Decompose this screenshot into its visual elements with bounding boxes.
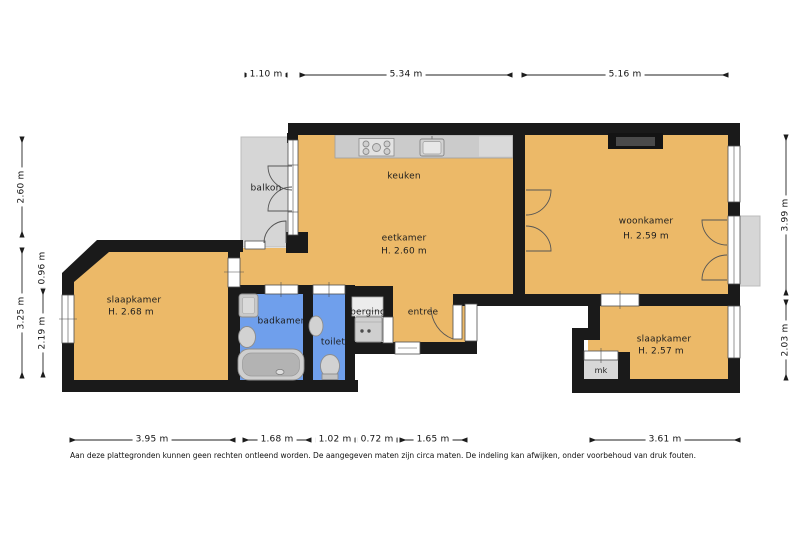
dim-bottom-2: 1.68 m	[258, 436, 297, 445]
dim-top-2: 5.34 m	[387, 71, 426, 80]
dim-left-outer-2: 3.25 m	[18, 294, 27, 333]
dim-left-outer-1: 2.60 m	[18, 168, 27, 207]
label-slaapkamer-rechts-height: H. 2.57 m	[638, 348, 684, 357]
stove-icon	[359, 139, 394, 157]
dim-bottom-5: 1.65 m	[414, 436, 453, 445]
dim-top-3: 5.16 m	[606, 71, 645, 80]
label-mk: mk	[595, 367, 608, 375]
french-balcony	[738, 216, 760, 286]
toilet-sink-icon	[309, 316, 323, 336]
bathroom-sink-icon	[239, 327, 256, 348]
label-toilet: toilet	[321, 339, 345, 348]
label-slaapkamer-rechts: slaapkamer	[637, 336, 692, 345]
dim-bottom-4: 0.72 m	[358, 436, 397, 445]
dim-bottom-6: 3.61 m	[646, 436, 685, 445]
chimney-niche	[608, 133, 663, 149]
label-slaapkamer-links: slaapkamer	[107, 297, 162, 306]
balkon-threshold	[245, 241, 265, 249]
room-woonkamer	[519, 129, 734, 300]
dim-bottom-3: 1.02 m	[316, 436, 355, 445]
dim-top-1: 1.10 m	[247, 71, 286, 80]
sink-icon	[420, 136, 444, 156]
label-woonkamer: woonkamer	[619, 218, 673, 227]
dim-bottom-1: 3.95 m	[133, 436, 172, 445]
slaapkamer-opening	[228, 258, 240, 287]
label-eetkamer-height: H. 2.60 m	[381, 248, 427, 257]
front-door	[465, 304, 477, 341]
floorplan-page: balkon keuken eetkamer H. 2.60 m woonkam…	[0, 0, 800, 533]
dim-left-inner-2: 2.19 m	[39, 314, 48, 353]
berging-door	[383, 317, 393, 343]
dim-left-inner-1: 0.96 m	[39, 249, 48, 288]
label-berging: berging	[350, 309, 386, 318]
disclaimer-text: Aan deze plattegronden kunnen geen recht…	[70, 452, 696, 460]
label-badkamer: badkamer	[257, 318, 304, 327]
label-keuken: keuken	[387, 173, 420, 182]
dim-right-2: 2.03 m	[782, 321, 791, 360]
dim-right-1: 3.99 m	[782, 196, 791, 235]
badkamer-door	[265, 285, 298, 294]
label-woonkamer-height: H. 2.59 m	[623, 233, 669, 242]
label-entree: entree	[408, 309, 439, 318]
label-balkon: balkon	[250, 185, 281, 194]
kitchen-counter	[335, 135, 513, 158]
label-slaapkamer-links-height: H. 2.68 m	[108, 309, 154, 318]
label-eetkamer: eetkamer	[382, 235, 427, 244]
